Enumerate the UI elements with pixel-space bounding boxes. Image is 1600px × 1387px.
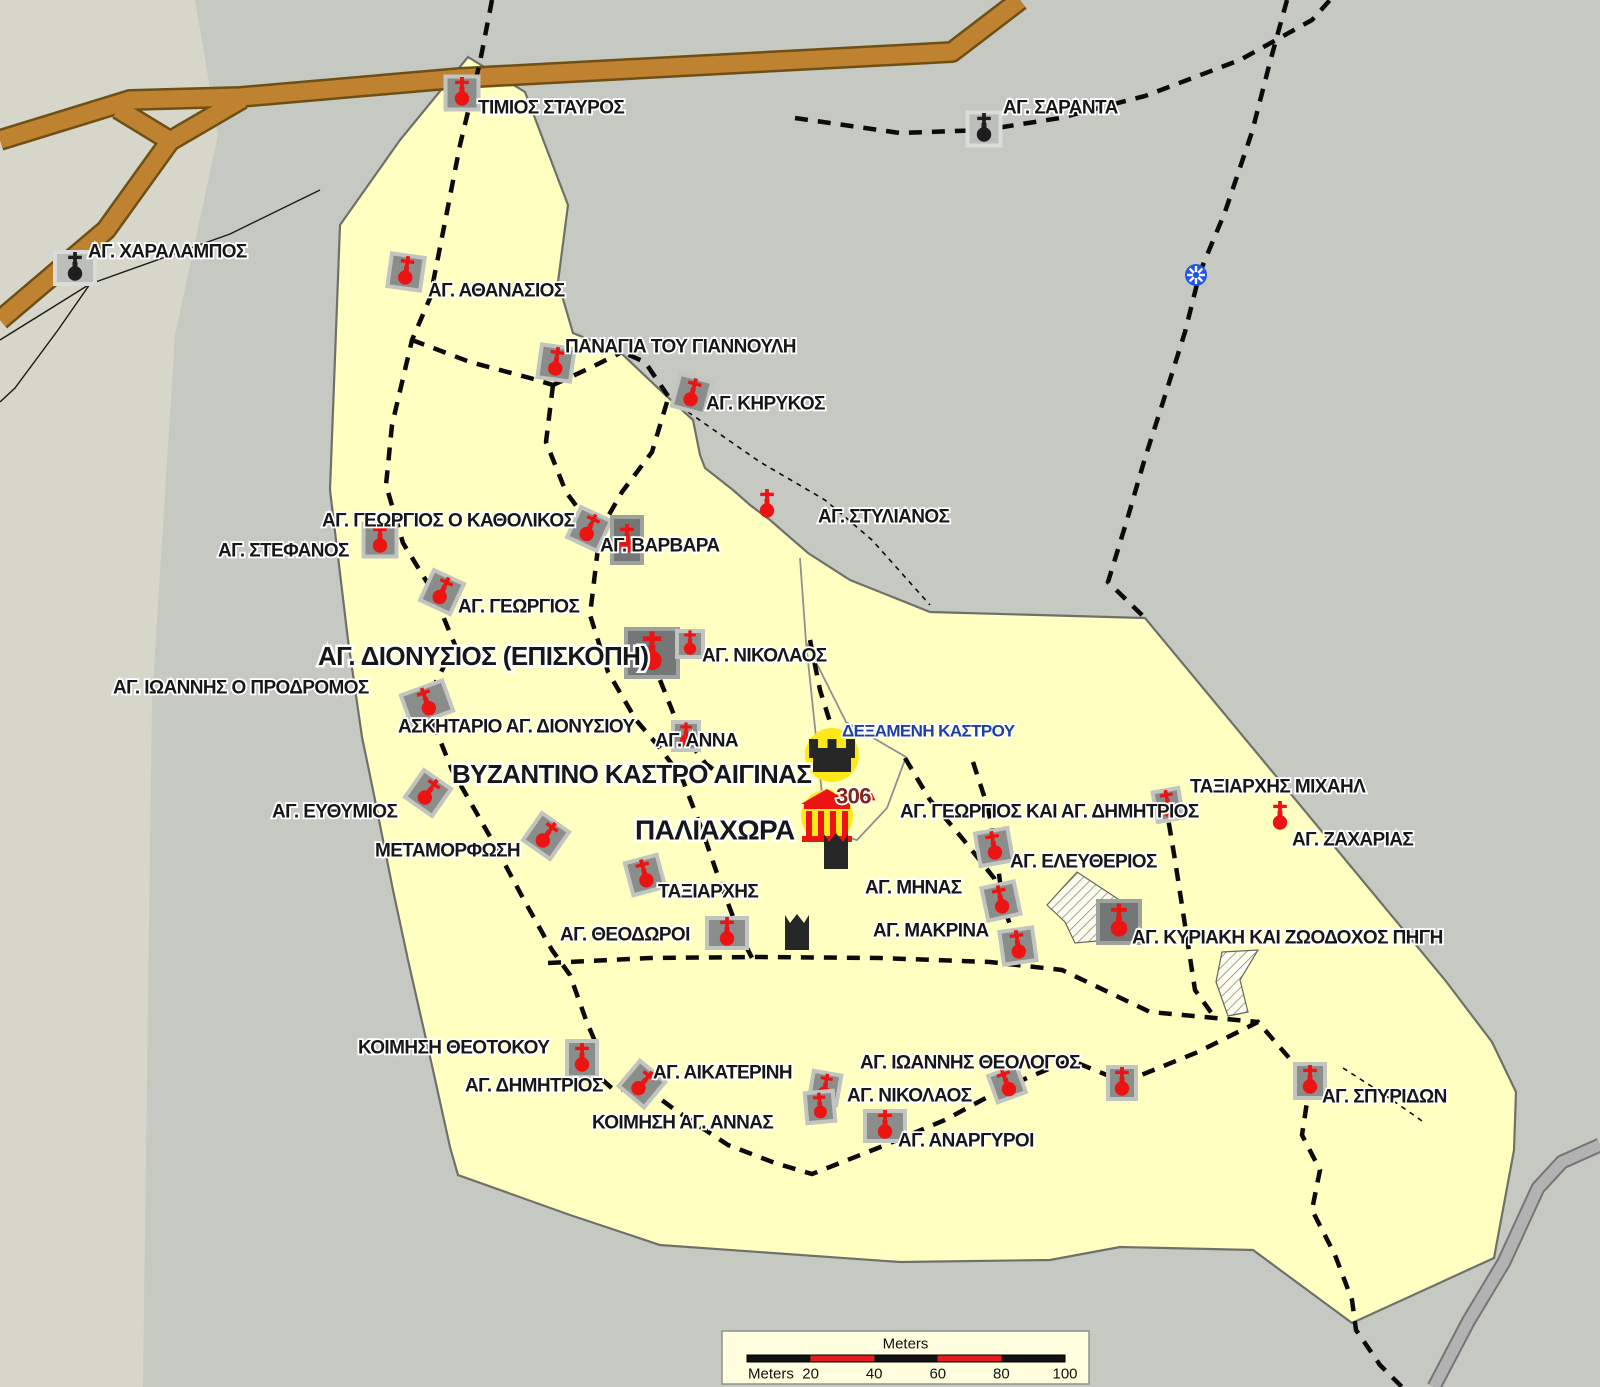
church-icon-ag-makrina[interactable] (999, 927, 1036, 964)
scale-bar-segment (1001, 1355, 1065, 1362)
map-viewport: ΤΙΜΙΟΣ ΣΤΑΥΡΟΣΑΓ. ΣΑΡΑΝΤΑΑΓ. ΧΑΡΑΛΑΜΠΟΣΑ… (0, 0, 1600, 1387)
scale-bar-segment (811, 1355, 875, 1362)
map-label: ΑΓ. ΕΥΘΥΜΙΟΣ (272, 802, 397, 823)
map-label: ΔΕΞΑΜΕΝΗ ΚΑΣΤΡΟΥ (842, 722, 1016, 741)
church-icon-ag-minas[interactable] (981, 881, 1020, 920)
map-label: ΑΓ. ΙΩΑΝΝΗΣ Ο ΠΡΟΔΡΟΜΟΣ (113, 678, 369, 699)
map-label: ΑΓ. ΓΕΩΡΓΙΟΣ ΚΑΙ ΑΓ. ΔΗΜΗΤΡΙΟΣ (900, 802, 1199, 823)
church-icon-timios-stavros[interactable] (446, 77, 479, 110)
map-label: ΑΓ. ΣΤΕΦΑΝΟΣ (218, 541, 349, 562)
map-label: ΑΓ. ΝΙΚΟΛΑΟΣ (847, 1086, 972, 1107)
map-label: ΠΑΝΑΓΙΑ ΤΟΥ ΓΙΑΝΝΟΥΛΗ (565, 337, 796, 358)
map-label: ΑΓ. ΓΕΩΡΓΙΟΣ Ο ΚΑΘΟΛΙΚΟΣ (322, 511, 575, 532)
church-icon-ag-athanasios[interactable] (387, 253, 424, 290)
map-label: ΑΓ. ΧΑΡΑΛΑΜΠΟΣ (88, 242, 247, 263)
scale-bar: MetersMeters20406080100 (722, 1331, 1089, 1384)
map-label: ΒΥΖΑΝΤΙΝΟ ΚΑΣΤΡΟ ΑΙΓΙΝΑΣ (452, 759, 811, 789)
church-icon-trail-church-east[interactable] (1108, 1067, 1136, 1099)
church-icon-ag-spyridon[interactable] (1295, 1064, 1325, 1098)
scale-bar-segment (747, 1355, 811, 1362)
map-label: ΑΓ. ΑΝΝΑ (655, 731, 739, 752)
map-label: ΑΓ. ΑΘΑΝΑΣΙΟΣ (428, 281, 565, 302)
map-label: ΑΓ. ΔΗΜΗΤΡΙΟΣ (465, 1076, 603, 1097)
scale-bar-segment (874, 1355, 938, 1362)
scale-bar-tick-label: 20 (802, 1366, 819, 1383)
map-label: ΑΓ. ΜΑΚΡΙΝΑ (873, 921, 990, 942)
map-label: ΑΓ. ΚΥΡΙΑΚΗ ΚΑΙ ΖΩΟΔΟΧΟΣ ΠΗΓΗ (1132, 928, 1443, 949)
church-icon-koimisi-annas-b[interactable] (805, 1091, 836, 1123)
map-label: ΤΑΞΙΑΡΧΗΣ ΜΙΧΑΗΛ (1190, 777, 1366, 798)
map-label: ΑΓ. ΝΙΚΟΛΑΟΣ (702, 646, 827, 667)
map-label: ΑΣΚΗΤΑΡΙΟ ΑΓ. ΔΙΟΝΥΣΙΟΥ (398, 717, 636, 738)
map-label: ΑΓ. ΒΑΡΒΑΡΑ (600, 536, 720, 557)
map-canvas[interactable]: ΤΙΜΙΟΣ ΣΤΑΥΡΟΣΑΓ. ΣΑΡΑΝΤΑΑΓ. ΧΑΡΑΛΑΜΠΟΣΑ… (0, 0, 1600, 1387)
map-label: ΑΓ. ΣΠΥΡΙΔΩΝ (1322, 1087, 1447, 1108)
scale-bar-segment (938, 1355, 1002, 1362)
scale-bar-tick-label: 40 (866, 1366, 883, 1383)
map-label: ΚΟΙΜΗΣΗ ΑΓ. ΑΝΝΑΣ (592, 1113, 773, 1134)
scale-bar-tick-label: 60 (929, 1366, 946, 1383)
map-label: ΑΓ. ΣΑΡΑΝΤΑ (1003, 98, 1119, 119)
map-label: ΠΑΛΙΑΧΩΡΑ (635, 815, 795, 846)
map-label: ΚΟΙΜΗΣΗ ΘΕΟΤΟΚΟΥ (358, 1038, 550, 1059)
map-label: ΑΓ. ΘΕΟΔΩΡΟΙ (560, 925, 690, 946)
map-label: ΑΓ. ΔΙΟΝΥΣΙΟΣ (ΕΠΙΣΚΟΠΗ) (318, 641, 648, 671)
map-label: ΑΓ. ΖΑΧΑΡΙΑΣ (1292, 830, 1413, 851)
map-label: 306 (836, 784, 871, 809)
map-label: ΑΓ. ΑΙΚΑΤΕΡΙΝΗ (653, 1063, 792, 1084)
map-label: ΑΓ. ΕΛΕΥΘΕΡΙΟΣ (1010, 852, 1157, 873)
church-icon-ag-theodoroi[interactable] (707, 917, 747, 948)
scale-bar-tick-label: 100 (1052, 1366, 1077, 1383)
scale-bar-title: Meters (883, 1336, 929, 1353)
spring-icon[interactable] (1185, 264, 1207, 286)
church-icon-ag-saranta[interactable] (968, 113, 1001, 146)
church-icon-koimisi-theotokou[interactable] (567, 1041, 597, 1077)
map-label: ΑΓ. ΚΗΡΥΚΟΣ (706, 394, 825, 415)
church-icon-ag-nikolaos-n[interactable] (677, 630, 703, 657)
scale-bar-tick-label: 80 (993, 1366, 1010, 1383)
map-label: ΑΓ. ΜΗΝΑΣ (865, 878, 962, 899)
church-icon-ag-eleftherios[interactable] (975, 828, 1013, 866)
map-label: ΑΓ. ΣΤΥΛΙΑΝΟΣ (818, 507, 950, 528)
map-label: ΜΕΤΑΜΟΡΦΩΣΗ (375, 841, 520, 862)
map-label: ΑΓ. ΑΝΑΡΓΥΡΟΙ (898, 1131, 1034, 1152)
map-label: ΑΓ. ΙΩΑΝΝΗΣ ΘΕΟΛΟΓΟΣ (860, 1053, 1080, 1074)
map-label: ΤΙΜΙΟΣ ΣΤΑΥΡΟΣ (478, 98, 624, 119)
map-label: ΑΓ. ΓΕΩΡΓΙΟΣ (458, 597, 579, 618)
map-label: ΤΑΞΙΑΡΧΗΣ (658, 882, 758, 903)
scale-bar-unit: Meters (748, 1366, 794, 1383)
